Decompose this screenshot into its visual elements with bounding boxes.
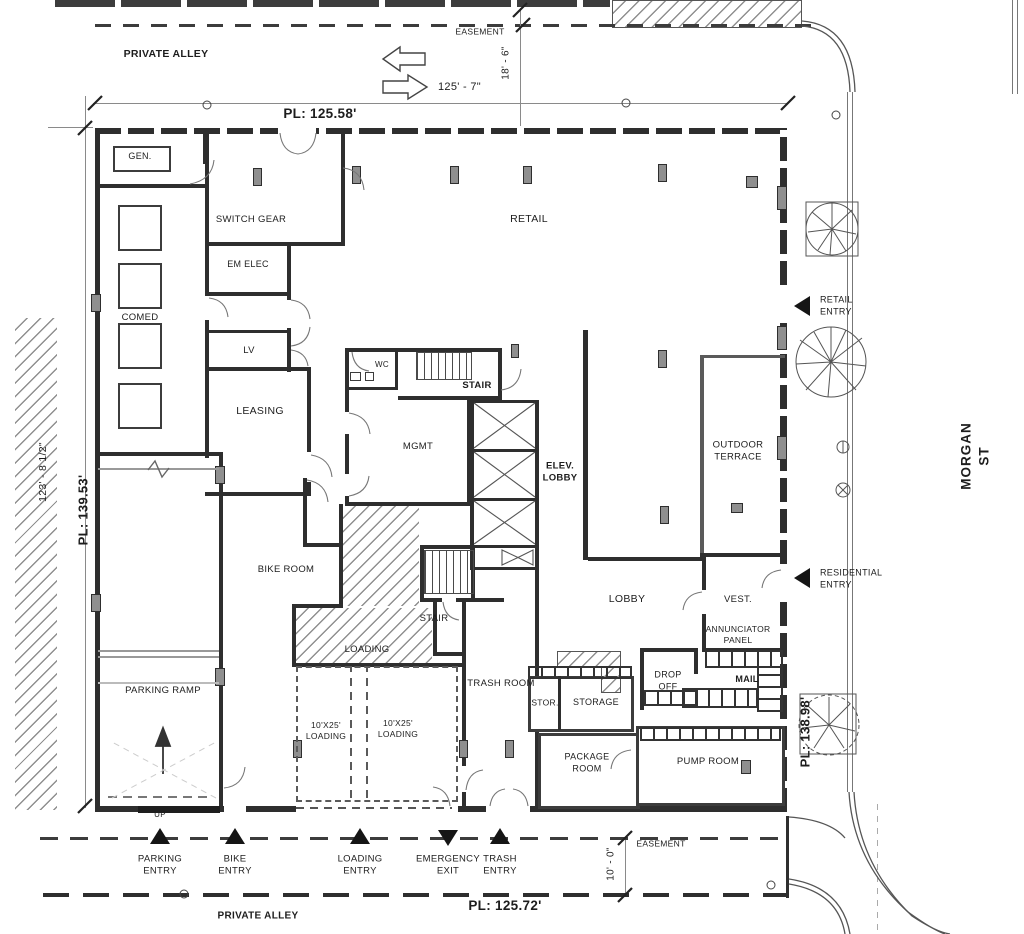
door-opening: [702, 590, 706, 614]
loading-hatch-area: [343, 506, 419, 606]
column: [660, 506, 669, 524]
wall: [640, 648, 698, 652]
easement-bottom-dim-line: [625, 838, 626, 895]
curb-line: [852, 92, 853, 792]
easement-label-bottom: EASEMENT: [636, 838, 685, 849]
ramp-line: [98, 682, 219, 684]
wall: [498, 348, 502, 400]
wc-fixture: [350, 372, 361, 381]
wall: [205, 292, 291, 296]
bike-entry-marker: [225, 828, 245, 844]
room-label-comed: COMED: [122, 312, 159, 324]
column: [253, 168, 262, 186]
property-line-east: PL: 138.98': [798, 697, 815, 768]
easement-top-dim: 18' - 6": [500, 46, 513, 79]
west-neighbor-hatch: [15, 318, 57, 810]
terrace-wall: [700, 355, 704, 557]
west-lot-dim: 123' - 8 1/2": [37, 442, 51, 502]
wall: [205, 242, 345, 246]
property-line-south: PL: 125.72': [468, 897, 541, 915]
column: [91, 594, 101, 612]
wall: [420, 598, 442, 602]
pump-room-equipment: [640, 727, 781, 741]
ramp-line: [98, 650, 219, 652]
entry-label-bike: BIKE ENTRY: [218, 854, 252, 879]
terrace-wall: [700, 355, 785, 358]
elevator-shaft-wall: [470, 545, 539, 548]
property-line-bottom: [43, 893, 788, 897]
storefront-pilaster: [777, 186, 787, 210]
room-label-annunciator: ANNUNCIATOR PANEL: [706, 624, 771, 646]
entry-label-retail: RETAIL ENTRY: [820, 294, 853, 317]
room-label-wc: WC: [375, 360, 389, 370]
door-opening: [287, 300, 291, 328]
door-opening: [224, 806, 246, 812]
wall: [700, 553, 785, 557]
elevator-shaft-wall: [470, 498, 539, 501]
wall: [433, 652, 466, 656]
storage-shelving: [528, 666, 632, 679]
room-label-vest: VEST.: [724, 594, 752, 606]
alley-width-dim-line: [93, 103, 788, 104]
loading-entry-marker: [350, 828, 370, 844]
room-label-em-elec: EM ELEC: [227, 259, 269, 271]
ramp-up-label: UP: [154, 810, 166, 820]
wall: [95, 452, 223, 456]
room-label-bike-room: BIKE ROOM: [258, 564, 315, 576]
storefront-pilaster: [777, 436, 787, 460]
entry-label-parking: PARKING ENTRY: [138, 854, 182, 879]
column: [746, 176, 758, 188]
wall: [205, 330, 291, 333]
wall: [303, 478, 307, 547]
elevator-shaft-wall: [470, 400, 539, 403]
column: [352, 166, 361, 184]
entry-label-loading: LOADING ENTRY: [338, 854, 383, 879]
stair-south-treads: [424, 550, 474, 594]
easement-line-top: [95, 24, 813, 27]
door-opening: [278, 128, 316, 134]
street-edge-line: [1017, 0, 1018, 94]
easement-top-dim-line: [520, 8, 521, 126]
elevator-shaft-wall: [470, 449, 539, 452]
room-label-parking-ramp: PARKING RAMP: [125, 685, 201, 697]
stair-north-treads: [416, 352, 472, 380]
wall-west: [95, 128, 100, 812]
room-label-drop-off: DROP OFF: [654, 669, 681, 692]
loading-door-sill: [296, 807, 452, 809]
wc-fixture: [365, 372, 374, 381]
room-label-loading-bay-1: 10'X25' LOADING: [306, 720, 346, 742]
west-dim-line: [85, 96, 86, 808]
wall: [95, 184, 205, 188]
entry-label-trash: TRASH ENTRY: [483, 854, 517, 879]
comed-transformer-pad: [118, 383, 162, 429]
comed-transformer-pad: [118, 263, 162, 309]
column: [731, 503, 743, 513]
tree-icon: [796, 327, 866, 397]
wall: [588, 557, 704, 561]
room-label-outdoor-terrace: OUTDOOR TERRACE: [713, 440, 764, 465]
trash-entry-marker: [490, 828, 510, 844]
parking-entry-marker: [150, 828, 170, 844]
column: [658, 350, 667, 368]
door-opening: [633, 748, 636, 772]
wall: [694, 648, 698, 674]
easement-bottom-dim: 10' - 0": [605, 847, 618, 880]
room-label-lobby: LOBBY: [609, 593, 646, 607]
street-edge-line: [1012, 0, 1013, 94]
wall: [345, 387, 398, 390]
column: [741, 760, 751, 774]
ramp-line: [98, 468, 219, 470]
door-opening: [780, 292, 787, 320]
alley-direction-arrows: [383, 47, 427, 99]
door-opening: [345, 474, 349, 496]
loading-bay-divider: [350, 666, 352, 798]
easement-label-top: EASEMENT: [455, 26, 504, 37]
wall: [341, 128, 345, 246]
room-label-stor: STOR.: [531, 697, 558, 708]
door-opening: [780, 566, 787, 596]
room-label-trash-room: TRASH ROOM: [467, 678, 534, 690]
room-label-lv: LV: [243, 345, 255, 357]
door-opening: [486, 806, 530, 812]
property-line-north: PL: 125.58': [283, 105, 356, 123]
room-label-pump-room: PUMP ROOM: [677, 756, 739, 768]
site-plan-canvas: PRIVATE ALLEY EASEMENT 125' - 7" 18' - 6…: [0, 0, 1024, 934]
elevator-shaft-wall: [470, 567, 539, 570]
street-label-private-alley-bottom: PRIVATE ALLEY: [218, 910, 299, 923]
easement-corner-line: [786, 816, 789, 898]
door-opening: [307, 452, 311, 482]
column: [91, 294, 101, 312]
column: [505, 740, 514, 758]
wall-north-storefront-dashes: [95, 128, 787, 134]
mail-boxes: [757, 666, 783, 712]
wall: [219, 452, 223, 812]
tree-icon: [806, 202, 858, 256]
garage-door-dash: [108, 796, 212, 798]
room-label-gen: GEN.: [128, 151, 151, 163]
door-opening: [462, 766, 466, 792]
west-dim-tick-line: [48, 127, 93, 128]
door-opening: [205, 296, 209, 320]
ramp-line: [98, 656, 219, 658]
sidewalk-dashed-line: [877, 800, 878, 930]
column: [450, 166, 459, 184]
room-label-package-room: PACKAGE ROOM: [565, 751, 610, 774]
comed-transformer-pad: [118, 323, 162, 369]
room-label-leasing: LEASING: [236, 405, 284, 419]
storefront-pilaster: [777, 326, 787, 350]
entry-label-residential: RESIDENTIAL ENTRY: [820, 567, 882, 590]
column: [658, 164, 667, 182]
room-label-stair-south: STAIR: [420, 613, 449, 625]
door-opening: [345, 412, 349, 434]
room-label-elev-lobby: ELEV. LOBBY: [543, 461, 578, 486]
room-label-loading-bay-2: 10'X25' LOADING: [378, 718, 418, 740]
wall: [456, 598, 504, 602]
wall: [303, 543, 343, 547]
wall: [433, 598, 437, 656]
garage-door-leaf: [138, 806, 220, 813]
room-label-mail: MAIL: [735, 674, 758, 686]
wall: [395, 348, 398, 390]
entry-label-emergency-exit: EMERGENCY EXIT: [416, 854, 480, 879]
column: [523, 166, 532, 184]
linework-overlay: [0, 0, 1024, 934]
column: [459, 740, 468, 758]
retail-entry-marker: [794, 296, 810, 316]
wall: [205, 367, 311, 371]
alley-width-dim: 125' - 7": [438, 80, 481, 94]
room-label-loading: LOADING: [345, 644, 390, 656]
street-label-private-alley-top: PRIVATE ALLEY: [124, 48, 209, 62]
room-label-switch-gear: SWITCH GEAR: [216, 214, 286, 226]
residential-entry-marker: [794, 568, 810, 588]
room-label-mgmt: MGMT: [403, 441, 433, 453]
property-line-west: PL: 139.53': [76, 475, 93, 546]
loading-bay-divider: [366, 666, 368, 798]
curb-line: [847, 92, 848, 792]
room-label-stair-north: STAIR: [462, 380, 491, 392]
room-label-storage: STORAGE: [573, 697, 619, 709]
wall: [583, 330, 588, 560]
wall: [420, 545, 474, 549]
street-label-morgan: MORGAN ST: [957, 422, 992, 490]
comed-transformer-pad: [118, 205, 162, 251]
column: [511, 344, 519, 358]
emergency-exit-marker: [438, 830, 458, 846]
room-label-retail: RETAIL: [510, 213, 548, 227]
neighbor-building-edge: [55, 0, 610, 7]
